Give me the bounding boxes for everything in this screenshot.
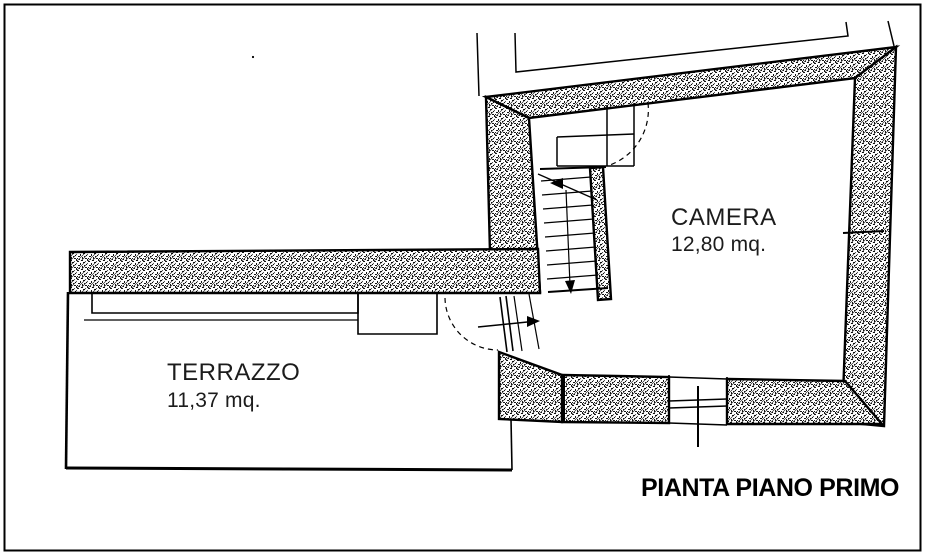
room-label-camera: CAMERA	[671, 206, 777, 230]
wall-bottom-left	[562, 375, 669, 423]
stray-mark	[252, 56, 254, 58]
floor-plan-drawing	[0, 0, 925, 555]
floor-plan-page: CAMERA 12,80 mq. TERRAZZO 11,37 mq. PIAN…	[0, 0, 925, 555]
plan-caption: PIANTA PIANO PRIMO	[641, 476, 899, 501]
room-label-terrazzo: TERRAZZO	[167, 361, 300, 385]
wall-terrace-top	[70, 249, 540, 293]
room-area-terrazzo: 11,37 mq.	[167, 390, 261, 411]
room-area-camera: 12,80 mq.	[671, 234, 766, 255]
